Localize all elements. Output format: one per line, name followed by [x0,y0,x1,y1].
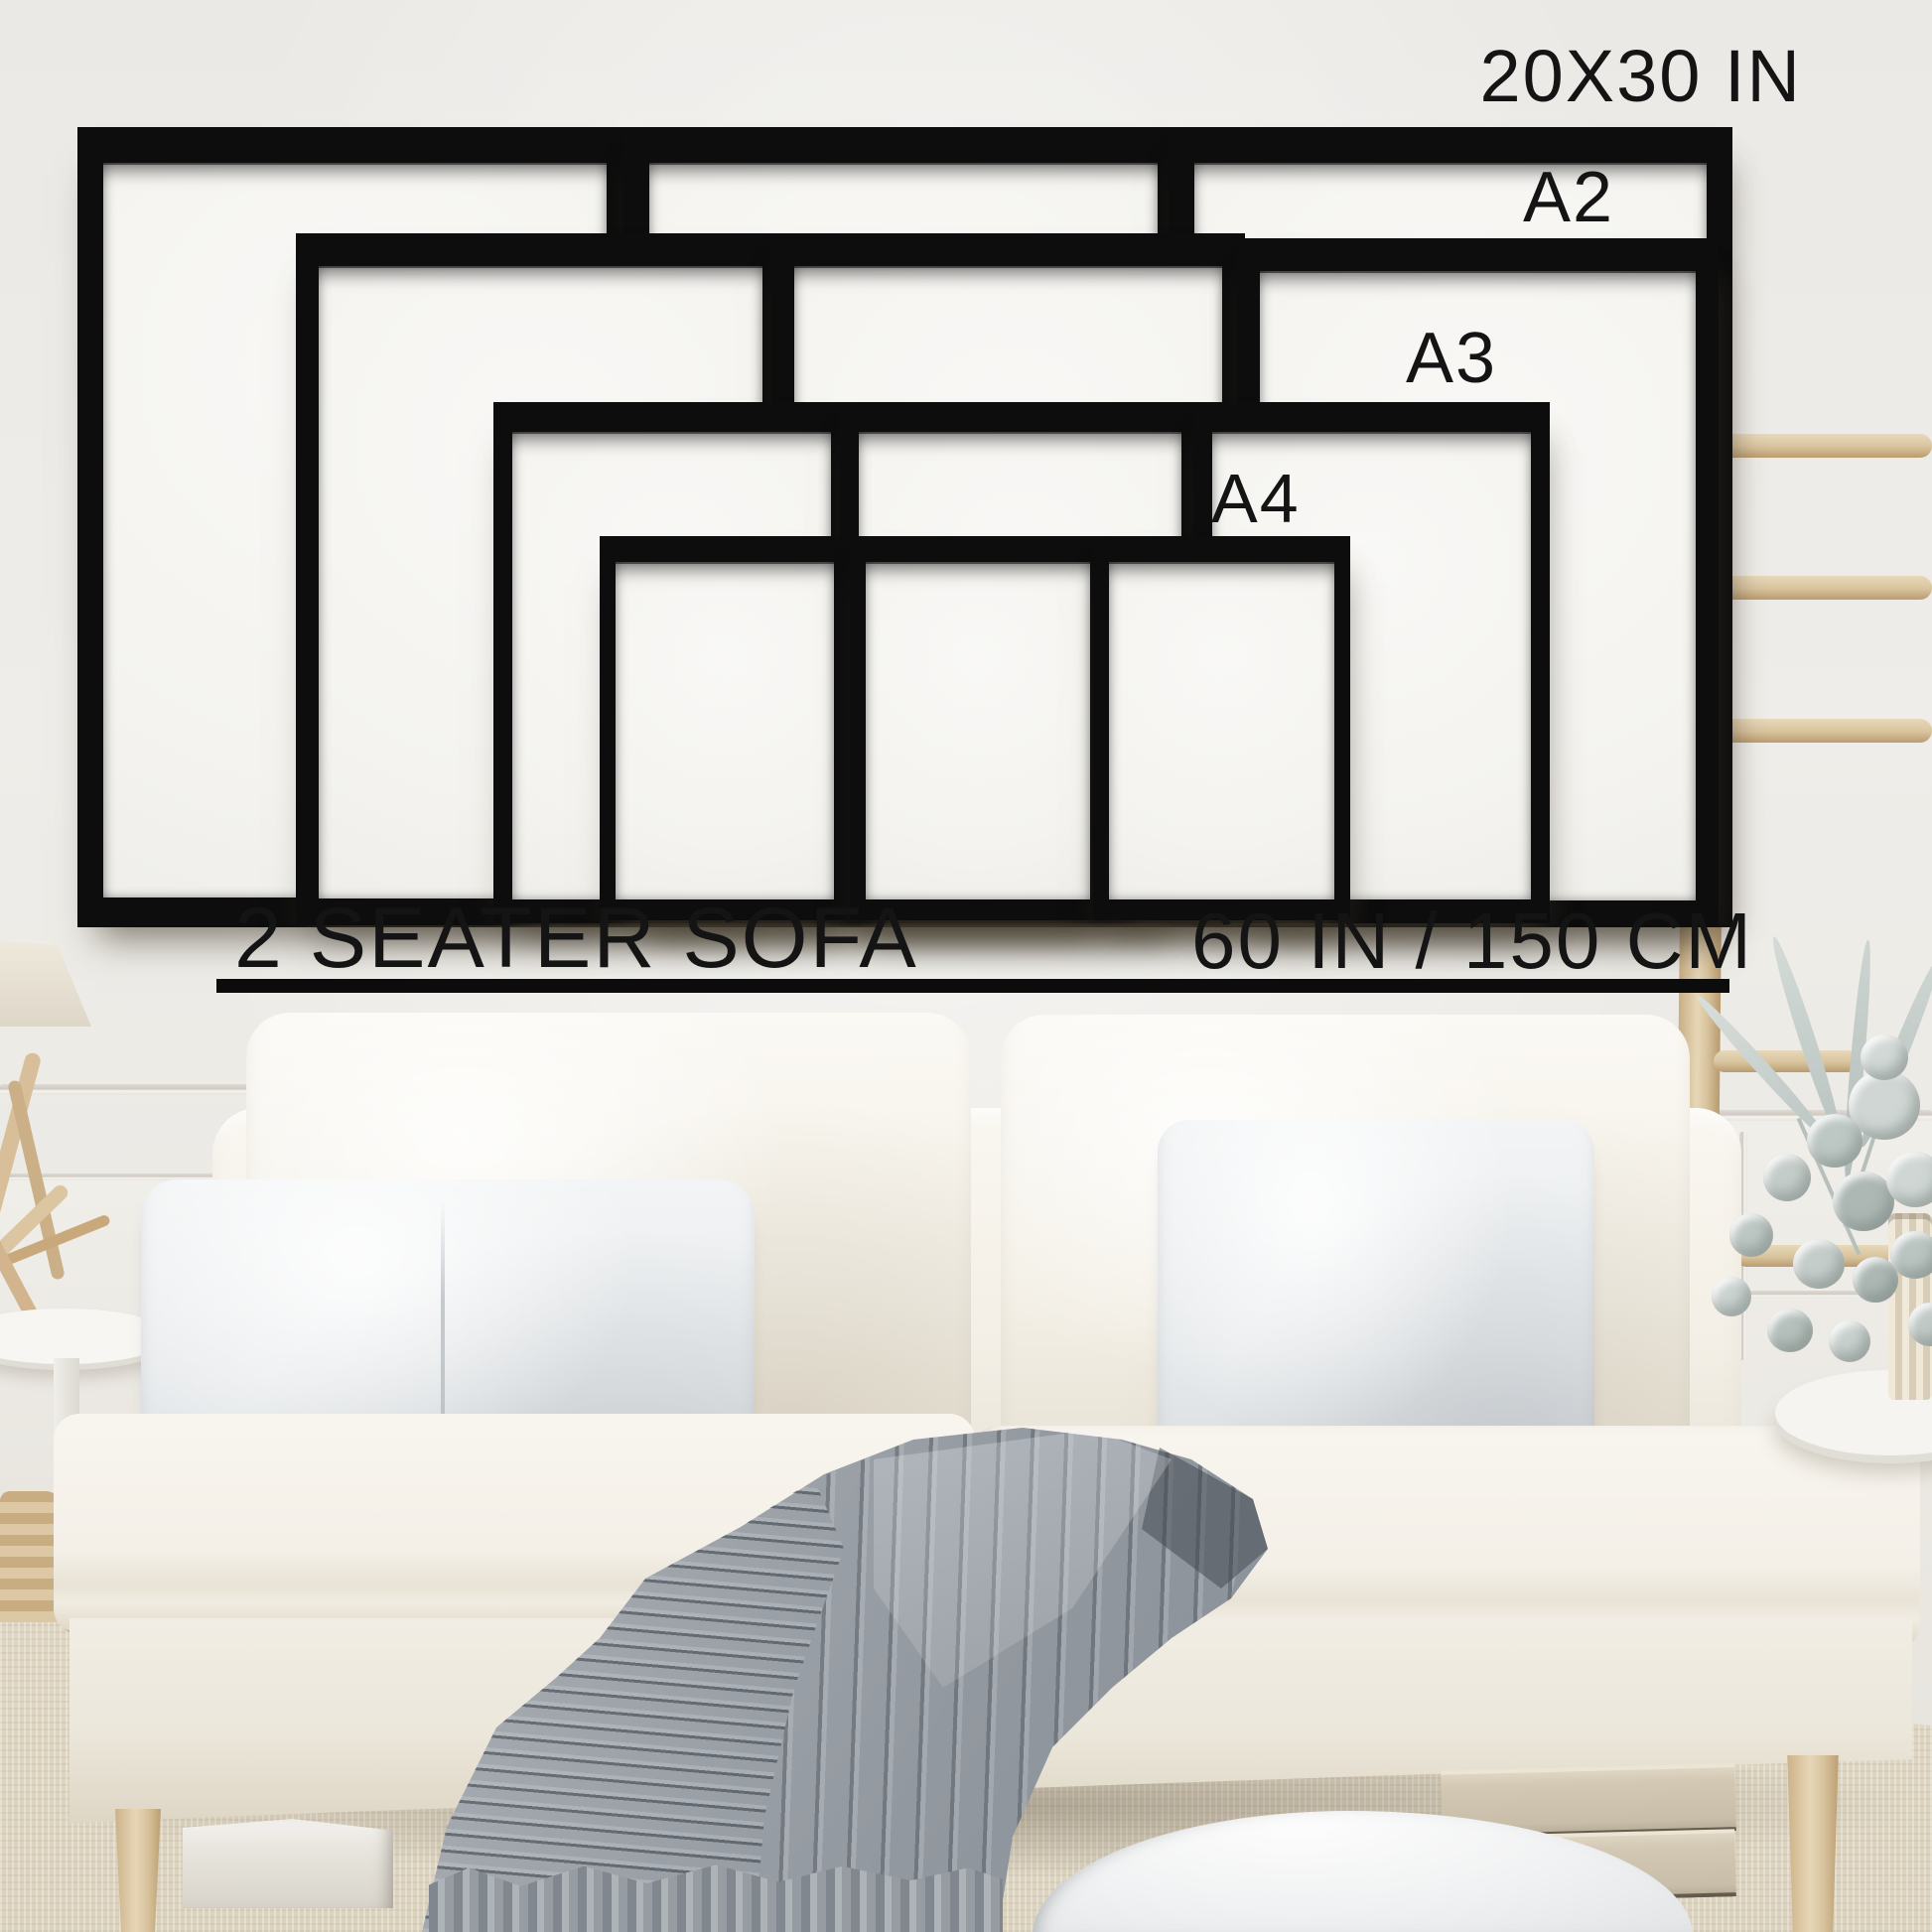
frame-a4-center [850,536,1106,920]
sofa-leg-left [113,1809,163,1932]
basket [0,1491,62,1622]
plant-leaf [1712,1277,1751,1316]
size-guide-scene: 20X30 IN A2 A3 A4 2 SEATER SOFA 60 IN / … [0,0,1932,1932]
frame-a4-left [600,536,850,920]
measurement-line [216,979,1729,993]
plant-leaf [1890,1231,1932,1279]
sofa-label: 2 SEATER SOFA [234,890,918,988]
size-label-20x30: 20X30 IN [1459,34,1802,118]
sofa-leg-right [1785,1755,1841,1932]
plant-leaf [1861,1035,1908,1080]
plant-leaf [1793,1239,1845,1289]
seat-cushion-right [973,1426,1920,1650]
plant-leaf [1767,1309,1813,1352]
sofa-width-label: 60 IN / 150 CM [1191,896,1686,987]
ladder-rung [1718,434,1932,458]
seat-cushion-left [54,1414,975,1634]
plant-leaf [1807,1114,1863,1168]
ladder-rung [1718,719,1932,743]
size-label-a3: A3 [1406,318,1497,399]
ladder-rung [1718,576,1932,600]
frame-a4-right [1093,536,1350,920]
plant-leaf [1833,1172,1894,1231]
plant-leaf [1729,1213,1773,1257]
plant-leaf [1763,1154,1811,1201]
size-label-a4: A4 [1211,459,1301,538]
plant-leaf [1829,1320,1870,1362]
ladder-rung [1714,1050,1859,1072]
storage-box-left [183,1819,393,1908]
size-label-a2: A2 [1523,157,1614,238]
